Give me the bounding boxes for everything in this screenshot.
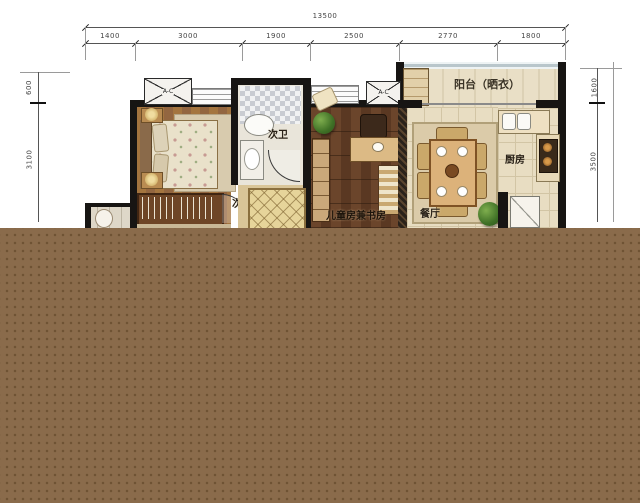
- dimension-label: 1900: [266, 33, 286, 40]
- daybed: [378, 165, 400, 215]
- dimension-label: 3000: [178, 33, 198, 40]
- room-label-kitchen: 厨房: [505, 156, 525, 166]
- room-label-balcony: 阳台（晒衣）: [454, 79, 520, 90]
- fridge: [510, 196, 540, 228]
- entry-door-mat: [248, 188, 306, 232]
- desk-item: [372, 142, 384, 152]
- wall: [231, 78, 238, 185]
- dimension-label: 1600: [591, 78, 598, 98]
- extension-line: [242, 43, 243, 61]
- wall: [85, 203, 137, 207]
- desk-chair: [360, 114, 387, 139]
- dimension-total-label: 13500: [313, 13, 338, 20]
- wall: [85, 205, 91, 228]
- pillow: [152, 123, 170, 152]
- wall-left-outer: [130, 100, 137, 228]
- extension-line: [580, 68, 622, 69]
- kitchen-sink: [502, 113, 516, 130]
- dimension-label: 1800: [521, 33, 541, 40]
- dimension-line-total: [85, 27, 565, 28]
- dimension-line-left: [38, 72, 39, 222]
- wardrobe-hangers: [142, 197, 176, 219]
- bookshelf: [312, 138, 330, 222]
- dimension-label: 3100: [26, 150, 33, 170]
- wardrobe-hangers: [181, 197, 215, 219]
- stove-burner: [543, 157, 552, 166]
- wall: [498, 192, 508, 228]
- kitchen-sink: [517, 113, 531, 130]
- extension-line: [135, 43, 136, 61]
- extension-line: [613, 62, 614, 222]
- plate: [436, 186, 447, 197]
- room-label-dining: 餐厅: [420, 210, 440, 220]
- floor-plan-image: 13500 1400 3000 1900 2500 2770 1800 600 …: [0, 0, 640, 503]
- ac-label: A-C: [162, 89, 174, 95]
- vanity-mirror: [95, 209, 113, 228]
- unrendered-area-overlay: [0, 228, 640, 503]
- room-label-bathroom: 次卫: [268, 131, 288, 141]
- wall-bath-top: [231, 78, 311, 85]
- dimension-label: 2500: [344, 33, 364, 40]
- centerpiece: [445, 164, 459, 178]
- wall: [398, 100, 422, 108]
- nightstand-lamp: [145, 108, 158, 121]
- dimension-label: 3500: [590, 152, 597, 172]
- extension-line: [85, 27, 86, 60]
- ac-unit-box: A-C: [366, 81, 401, 105]
- plate: [436, 146, 447, 157]
- wall-hatched: [398, 107, 407, 228]
- stove-burner: [543, 143, 552, 152]
- extension-line: [497, 43, 498, 61]
- dimension-tick: [30, 102, 46, 104]
- bedroom-window: [192, 88, 233, 105]
- extension-line: [20, 72, 70, 73]
- dimension-label: 1400: [100, 33, 120, 40]
- dimension-label: 2770: [438, 33, 458, 40]
- dimension-label: 600: [26, 80, 33, 95]
- dimension-line-segments: [85, 43, 565, 44]
- sliding-door-track: [422, 103, 536, 105]
- nightstand-lamp: [145, 173, 158, 186]
- plate: [457, 146, 468, 157]
- ac-label: A-C: [377, 90, 389, 96]
- dimension-tick: [589, 102, 605, 104]
- extension-line: [565, 27, 566, 60]
- extension-line: [399, 43, 400, 61]
- vanity-sink: [244, 148, 260, 170]
- plate: [457, 186, 468, 197]
- extension-line: [310, 43, 311, 61]
- room-label-kids-study: 儿童房兼书房: [326, 212, 386, 222]
- plant-icon: [313, 112, 335, 134]
- ac-unit-box: A-C: [144, 78, 192, 105]
- wall: [536, 100, 566, 108]
